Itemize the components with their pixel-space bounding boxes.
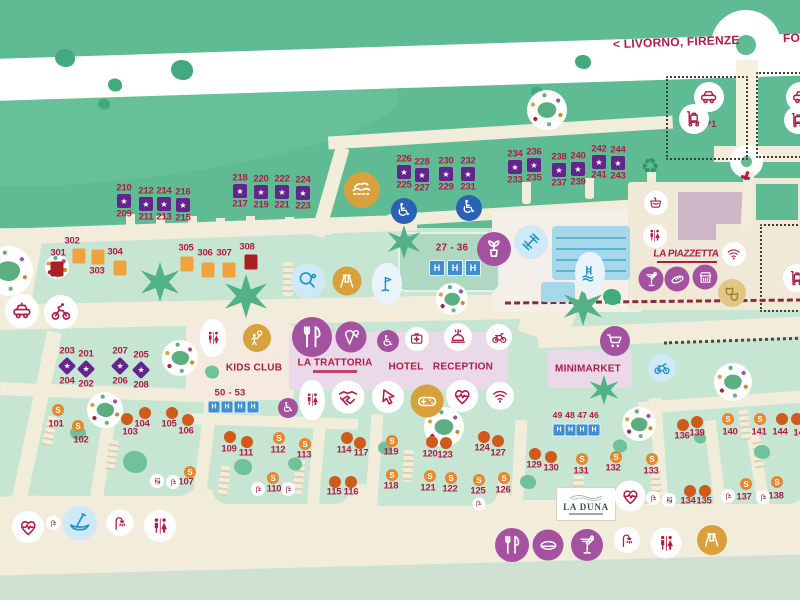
pitch-number: 210 [116, 183, 131, 194]
pitch-marker: ★ [157, 197, 171, 211]
pitch-marker: ★ [508, 160, 522, 174]
cocktail-icon [639, 267, 664, 292]
pitch-number: 134 [680, 496, 695, 507]
masks-icon [718, 279, 746, 307]
pitch-marker [241, 436, 253, 448]
pitch-number: 138 [768, 491, 783, 502]
pitch-superior-marker: S [473, 474, 485, 486]
pitch-number: 226 [396, 154, 411, 165]
pitch-number: 122 [442, 484, 457, 495]
handshake-icon [332, 381, 365, 414]
pitch-number: 244 [610, 145, 625, 156]
pitch-marker [181, 257, 194, 272]
lodging-unit: H [588, 424, 601, 437]
pitch-number: 201 [78, 349, 93, 360]
playground-icon [162, 340, 198, 376]
bakery-icon [665, 267, 690, 292]
pitch-number: 220 [253, 174, 268, 185]
wc-icon [200, 319, 226, 357]
playground-icon [714, 363, 752, 401]
swing-icon [697, 525, 727, 555]
shower-icon [614, 527, 640, 553]
lodging-unit: H [208, 401, 221, 414]
pitch-number: 238 [551, 152, 566, 163]
pitch-marker [245, 255, 258, 270]
pitch-number: 204 [59, 376, 74, 387]
pitch-marker: ★ [571, 162, 585, 176]
pitch-number: 219 [253, 200, 268, 211]
heart-care-icon [446, 380, 478, 412]
cursor-icon [372, 381, 404, 413]
pitch-number: 137 [736, 492, 751, 503]
lodging-unit: H [234, 401, 247, 414]
pitch-superior-marker: S [386, 435, 398, 447]
restaurant-icon [495, 528, 529, 562]
pitch-marker [529, 448, 541, 460]
pitch-marker: ★ [275, 185, 289, 199]
tree [603, 289, 621, 305]
pitch-marker: ★ [527, 158, 541, 172]
tree [123, 451, 147, 473]
pitch-marker: ★ [233, 184, 247, 198]
tree [108, 79, 122, 92]
pitch-marker: ★ [397, 165, 411, 179]
golf-icon [372, 263, 402, 305]
lodging-label: 50 - 53 [215, 388, 246, 399]
pitch-number: 126 [495, 485, 510, 496]
pitch-number: 119 [384, 447, 399, 458]
lodging-unit: H [465, 260, 481, 276]
wc-icon [662, 493, 676, 507]
pitch-number: 217 [232, 199, 247, 210]
lodging-label: 46 [589, 410, 599, 420]
pitch-number: 101 [48, 419, 63, 430]
pitch-number: 302 [64, 236, 79, 247]
wheelchair-icon: ♿ [456, 195, 482, 221]
tree [171, 60, 193, 80]
pitch-marker [114, 261, 127, 276]
pitch-number: 305 [178, 243, 193, 254]
pool-ladder-icon [575, 252, 605, 294]
pitch-number: 107 [178, 477, 193, 488]
pitch-number: 229 [438, 182, 453, 193]
fitness-icon [514, 225, 548, 259]
wc-icon [651, 528, 682, 559]
pitch-marker: ★ [254, 185, 268, 199]
playground-icon [436, 283, 468, 315]
shower-icon [281, 482, 295, 496]
pitch-number: 301 [50, 248, 65, 259]
pitch-number: 123 [437, 450, 452, 461]
pitch-superior-marker: S [273, 432, 285, 444]
pitch-superior-marker: S [722, 413, 734, 425]
heart-care-icon [615, 481, 646, 512]
cocktail-icon [571, 529, 603, 561]
tree [98, 99, 110, 110]
pitch-marker: ★ [296, 186, 310, 200]
pitch-number: 135 [696, 496, 711, 507]
duna-waves-icon [563, 493, 609, 501]
wc-icon [643, 224, 667, 248]
pitch-marker [121, 413, 133, 425]
lodging-label: 49 48 47 [553, 410, 588, 420]
recycle-icon: ♻ [635, 151, 665, 181]
lodging-unit: H [429, 260, 445, 276]
pitch-number: 203 [59, 346, 74, 357]
shower-icon [646, 491, 660, 505]
pitch-superior-marker: S [424, 470, 436, 482]
pitch-number: 225 [396, 180, 411, 191]
pitch-marker [545, 451, 557, 463]
wheelchair-icon: ♿ [377, 330, 399, 352]
pitch-number: 209 [116, 209, 131, 220]
pitch-marker [202, 263, 215, 278]
pitch-number: 114 [337, 445, 352, 456]
wc-icon [299, 380, 325, 420]
pitch-number: 307 [216, 248, 231, 259]
pitch-number: 224 [295, 175, 310, 186]
playground-icon [527, 90, 567, 130]
heart-care-icon [12, 511, 44, 543]
controller-icon [411, 385, 444, 418]
massage-icon [344, 172, 380, 208]
wifi-icon [722, 242, 746, 266]
pitch-number: 110 [267, 484, 282, 495]
pitch-marker [73, 249, 86, 264]
pitch-superior-marker: S [267, 472, 279, 484]
lodging-label: 27 - 36 [436, 243, 469, 254]
pitch-number: 211 [139, 212, 154, 223]
tree [205, 366, 219, 379]
road [522, 182, 531, 204]
pitch-number: 242 [591, 144, 606, 155]
pitch-number: 237 [551, 178, 566, 189]
wifi-icon [486, 382, 514, 410]
road-sign-right: FO [783, 31, 800, 46]
swing-icon [333, 267, 362, 296]
pitch-marker: ★ [139, 197, 153, 211]
pitch-number: 235 [526, 173, 541, 184]
pitch-marker [223, 263, 236, 278]
pitch-number: 240 [570, 151, 585, 162]
snack-icon [533, 530, 564, 561]
pitch-number: 230 [438, 156, 453, 167]
pitch-number: 214 [156, 186, 171, 197]
road [246, 216, 255, 233]
pitch-number: 124 [474, 443, 489, 454]
bike-icon [486, 324, 512, 350]
pitch-number: 131 [573, 466, 588, 477]
pitch-number: 118 [384, 481, 399, 492]
restaurant-icon [292, 317, 332, 357]
pitch-number: 206 [112, 376, 127, 387]
pitch-number: 141 [751, 427, 766, 438]
pitch-marker: ★ [611, 156, 625, 170]
pitch-number: 120 [422, 449, 437, 460]
reception-label: RECEPTION [433, 362, 493, 373]
pitch-superior-marker: S [72, 420, 84, 432]
pitch-number: 236 [526, 147, 541, 158]
pitch-number: 130 [543, 463, 558, 474]
pitch-marker: ★ [461, 167, 475, 181]
lodging-unit: H [447, 260, 463, 276]
pitch-number: 139 [689, 428, 704, 439]
pitch-number: 228 [414, 157, 429, 168]
pitch-marker [166, 407, 178, 419]
pitch-number: 125 [470, 486, 485, 497]
la-duna-sign: LA DUNA [556, 487, 616, 521]
piazzetta-underline [657, 261, 717, 263]
pitch-marker [677, 419, 689, 431]
pingpong-icon [291, 264, 326, 299]
wheelchair-icon: ♿ [278, 398, 298, 418]
pitch-number: 133 [643, 466, 658, 477]
pitch-number: 140 [722, 427, 737, 438]
piazzetta-label: LA PIAZZETTA [653, 249, 719, 260]
pitch-number: 221 [274, 200, 289, 211]
bike-icon [648, 354, 676, 382]
road [585, 178, 594, 199]
pitch-number: 304 [107, 247, 122, 258]
campground-map: < LIVORNO, FIRENZE FO P1 KIDS CLUB LA TR… [0, 0, 800, 600]
playground-icon [622, 407, 656, 441]
pitch-number: 104 [134, 419, 149, 430]
kids-club-label: KIDS CLUB [226, 363, 282, 374]
pitch-number: 223 [295, 201, 310, 212]
tree [55, 49, 75, 67]
pitch-superior-marker: S [498, 472, 510, 484]
pitch-marker [791, 413, 800, 425]
pitch-number: 233 [507, 175, 522, 186]
trattoria-label: LA TRATTORIA [298, 358, 373, 369]
pitch-number: 102 [73, 435, 88, 446]
pitch-number: 208 [133, 380, 148, 391]
pitch-number: 106 [178, 426, 193, 437]
road [285, 217, 294, 234]
pitch-superior-marker: S [754, 413, 766, 425]
shower-icon [46, 516, 60, 530]
pitch-marker [139, 407, 151, 419]
pitch-number: 232 [460, 156, 475, 167]
first-aid-icon [405, 327, 429, 351]
pitch-number: 306 [197, 248, 212, 259]
lodging-unit: H [221, 401, 234, 414]
pitch-marker [478, 431, 490, 443]
pitch-marker [224, 431, 236, 443]
pitch-superior-marker: S [771, 476, 783, 488]
laundry-icon [644, 191, 668, 215]
market-icon [693, 265, 718, 290]
road [216, 218, 225, 236]
pitch-marker: ★ [552, 163, 566, 177]
la-duna-subtitle [569, 513, 603, 515]
pitch-number: 136 [674, 431, 689, 442]
pitch-superior-marker: S [610, 451, 622, 463]
pitch-marker [440, 437, 452, 449]
pitch-number: 241 [591, 170, 606, 181]
pitch-marker: ★ [117, 194, 131, 208]
pitch-superior-marker: S [299, 438, 311, 450]
shower-icon [721, 489, 735, 503]
pitch-number: 112 [271, 445, 286, 456]
rescue-car-icon [5, 294, 39, 328]
kids-club-icon [243, 324, 271, 352]
pitch-number: 239 [570, 177, 585, 188]
trattoria-subtitle [313, 370, 357, 373]
pitch-superior-marker: S [576, 453, 588, 465]
pitch-number: 207 [112, 346, 127, 357]
tree [520, 475, 536, 489]
cart-icon [600, 326, 630, 356]
minimarket-label: MINIMARKET [555, 364, 621, 375]
pitch-number: 215 [175, 213, 190, 224]
luggage-cart-icon [679, 104, 709, 134]
plant-icon [477, 232, 511, 266]
tree [754, 445, 770, 459]
wc-icon [144, 510, 176, 542]
cyclist-icon [44, 295, 78, 329]
bell-icon [444, 323, 472, 351]
pitch-number: 218 [232, 173, 247, 184]
tree [234, 459, 252, 475]
pitch-number: 144 [772, 427, 787, 438]
pitch-number: 117 [354, 448, 369, 459]
lodging-unit: H [247, 401, 260, 414]
pitch-marker: ★ [439, 167, 453, 181]
pitch-number: 231 [460, 182, 475, 193]
pitch-number: 121 [420, 483, 435, 494]
shower-icon [473, 498, 486, 511]
pitch-number: 243 [610, 171, 625, 182]
pitch-number: 132 [605, 463, 620, 474]
pitch-number: 116 [344, 487, 359, 498]
pitch-number: 113 [297, 450, 312, 461]
canoe-icon [63, 506, 98, 541]
pitch-superior-marker: S [386, 469, 398, 481]
pitch-number: 127 [490, 448, 505, 459]
side-panel-lawn [756, 184, 798, 220]
pitch-number: 234 [507, 149, 522, 160]
shower-icon [166, 475, 180, 489]
pitch-marker [92, 250, 105, 265]
piazzetta-building [678, 192, 716, 240]
pitch-marker [426, 436, 438, 448]
pitch-number: 308 [239, 242, 254, 253]
gelateria-icon [336, 322, 367, 353]
road [323, 218, 332, 235]
pitch-marker [776, 413, 788, 425]
pitch-number: 303 [89, 266, 104, 277]
shower-icon [251, 482, 265, 496]
pitch-marker [182, 414, 194, 426]
pitch-superior-marker: S [646, 453, 658, 465]
la-duna-label: LA DUNA [563, 502, 609, 512]
pitch-marker [691, 416, 703, 428]
pitch-marker [341, 432, 353, 444]
wc-icon [150, 474, 164, 488]
pitch-marker: ★ [592, 155, 606, 169]
pitch-number: 205 [133, 350, 148, 361]
pitch-number: 212 [138, 186, 153, 197]
pitch-marker [51, 262, 64, 277]
pitch-number: 109 [221, 444, 236, 455]
pitch-number: 216 [175, 187, 190, 198]
pitch-marker: ★ [415, 168, 429, 182]
shower-icon [756, 490, 770, 504]
pitch-superior-marker: S [740, 478, 752, 490]
pitch-number: 129 [526, 460, 541, 471]
tree [575, 55, 591, 69]
shower-icon [107, 510, 134, 537]
pitch-number: 222 [274, 174, 289, 185]
pitch-number: 213 [156, 212, 171, 223]
pitch-marker: ★ [176, 198, 190, 212]
pitch-number: 105 [161, 419, 176, 430]
pitch-number: 115 [327, 487, 342, 498]
wheelchair-icon: ♿ [391, 198, 417, 224]
pitch-number: 111 [239, 448, 253, 459]
pitch-marker [492, 435, 504, 447]
pitch-superior-marker: S [52, 404, 64, 416]
pitch-number: 202 [78, 379, 93, 390]
pitch-number: 145 [793, 428, 800, 439]
pitch-number: 227 [414, 183, 429, 194]
playground-icon [87, 392, 123, 428]
hotel-label: HOTEL [389, 362, 424, 373]
pitch-superior-marker: S [445, 472, 457, 484]
